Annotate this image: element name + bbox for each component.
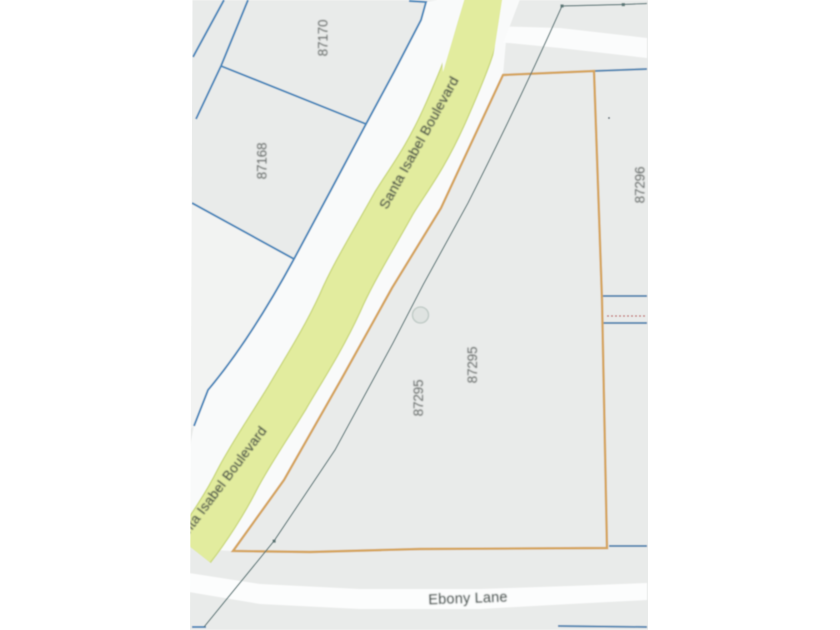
svg-text:Ebony Lane: Ebony Lane xyxy=(428,590,508,609)
svg-text:87168: 87168 xyxy=(255,143,270,180)
svg-text:87295: 87295 xyxy=(411,380,426,417)
svg-text:87296: 87296 xyxy=(633,167,648,204)
svg-text:87170: 87170 xyxy=(316,19,331,56)
svg-text:87295: 87295 xyxy=(465,347,480,384)
